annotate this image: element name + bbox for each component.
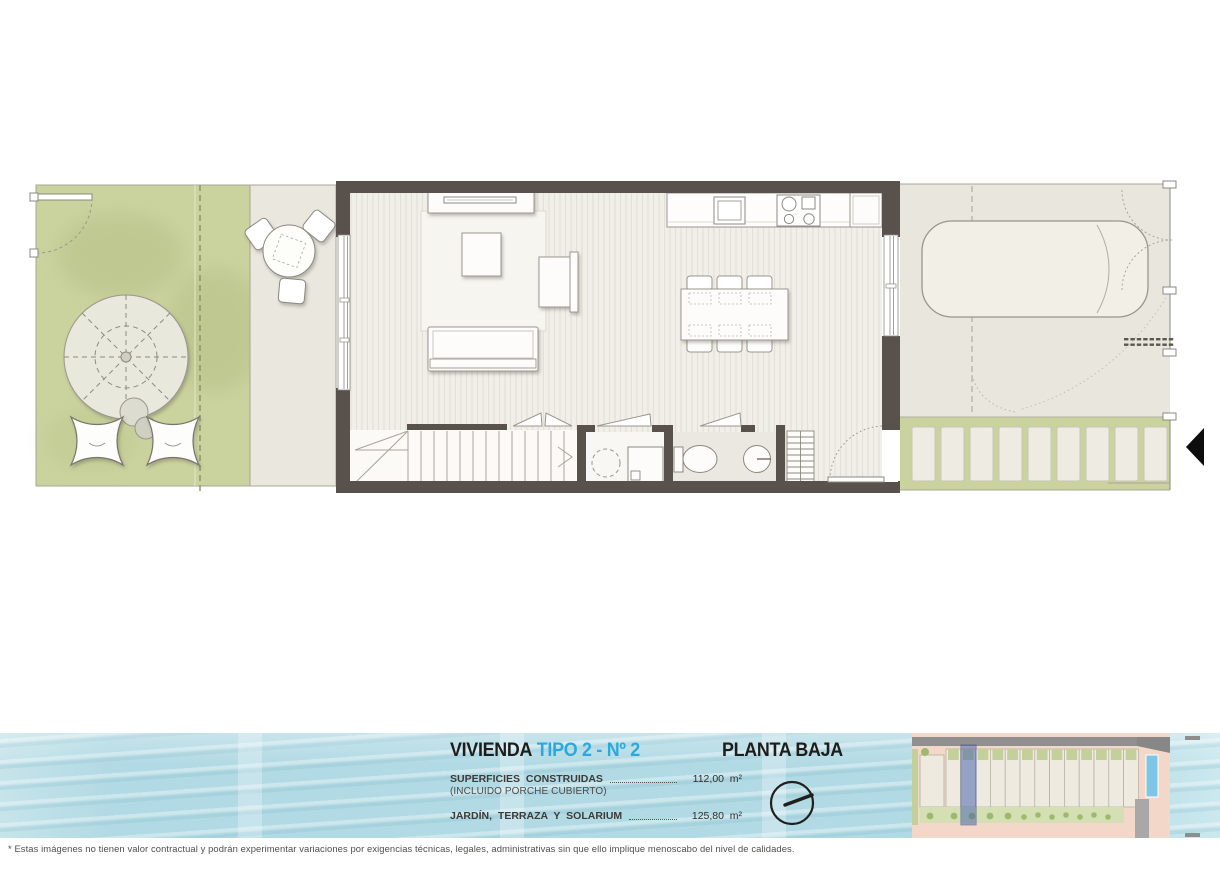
dining-table — [681, 289, 788, 340]
surface-label: JARDÍN, TERRAZA Y SOLARIUM — [450, 810, 622, 822]
house — [350, 189, 882, 484]
surface-row-garden: JARDÍN, TERRAZA Y SOLARIUM 125,80 m² — [450, 810, 742, 822]
dotted-leader — [629, 818, 677, 820]
disclaimer-text: * Estas imágenes no tienen valor contrac… — [8, 843, 1108, 854]
site-road-top — [912, 737, 1150, 746]
armchair — [539, 252, 578, 312]
staircase-floor — [350, 430, 577, 483]
dotted-leader — [610, 781, 677, 783]
stepping-stones — [912, 427, 1167, 481]
surface-label: SUPERFICIES CONSTRUIDAS — [450, 773, 603, 785]
toilet-tank — [674, 447, 683, 472]
site-plan-key-icon — [912, 733, 1170, 838]
unit-title: VIVIENDATIPO 2 - Nº 2 — [450, 740, 640, 762]
project-name: VIVIENDA — [450, 740, 532, 761]
toilet — [683, 446, 717, 473]
shelving-unit — [787, 431, 814, 484]
site-road-right — [1135, 799, 1149, 838]
cooktop — [777, 195, 820, 226]
coffee-table — [462, 233, 501, 276]
fridge — [850, 193, 882, 227]
driveway — [900, 181, 1204, 490]
surface-value: 112,00 — [684, 773, 724, 785]
stair-handrail — [407, 424, 507, 430]
highlighted-unit — [961, 745, 976, 825]
surface-row-built: SUPERFICIES CONSTRUIDAS 112,00 m² — [450, 773, 742, 785]
sofa — [428, 327, 538, 371]
site-pool — [1146, 755, 1158, 797]
surface-value: 125,80 — [684, 810, 724, 822]
porch-window — [338, 235, 350, 390]
kitchen-window — [884, 235, 898, 336]
garden — [30, 185, 337, 492]
surface-unit: m² — [724, 810, 742, 822]
entrance-arrow-icon — [1186, 428, 1204, 466]
floor-title: PLANTA BAJA — [722, 740, 843, 762]
unit-type-label: TIPO 2 - Nº 2 — [537, 740, 640, 761]
north-indicator-icon — [768, 779, 816, 827]
surface-sublabel: (INCLUIDO PORCHE CUBIERTO) — [450, 786, 607, 797]
dining-set — [681, 276, 788, 352]
surface-unit: m² — [724, 773, 742, 785]
plan-sheet: VIVIENDATIPO 2 - Nº 2 PLANTA BAJA SUPERF… — [0, 0, 1220, 870]
car — [922, 221, 1148, 317]
registration-mark — [1185, 833, 1200, 837]
appliance — [628, 447, 663, 483]
registration-mark — [1185, 736, 1200, 740]
